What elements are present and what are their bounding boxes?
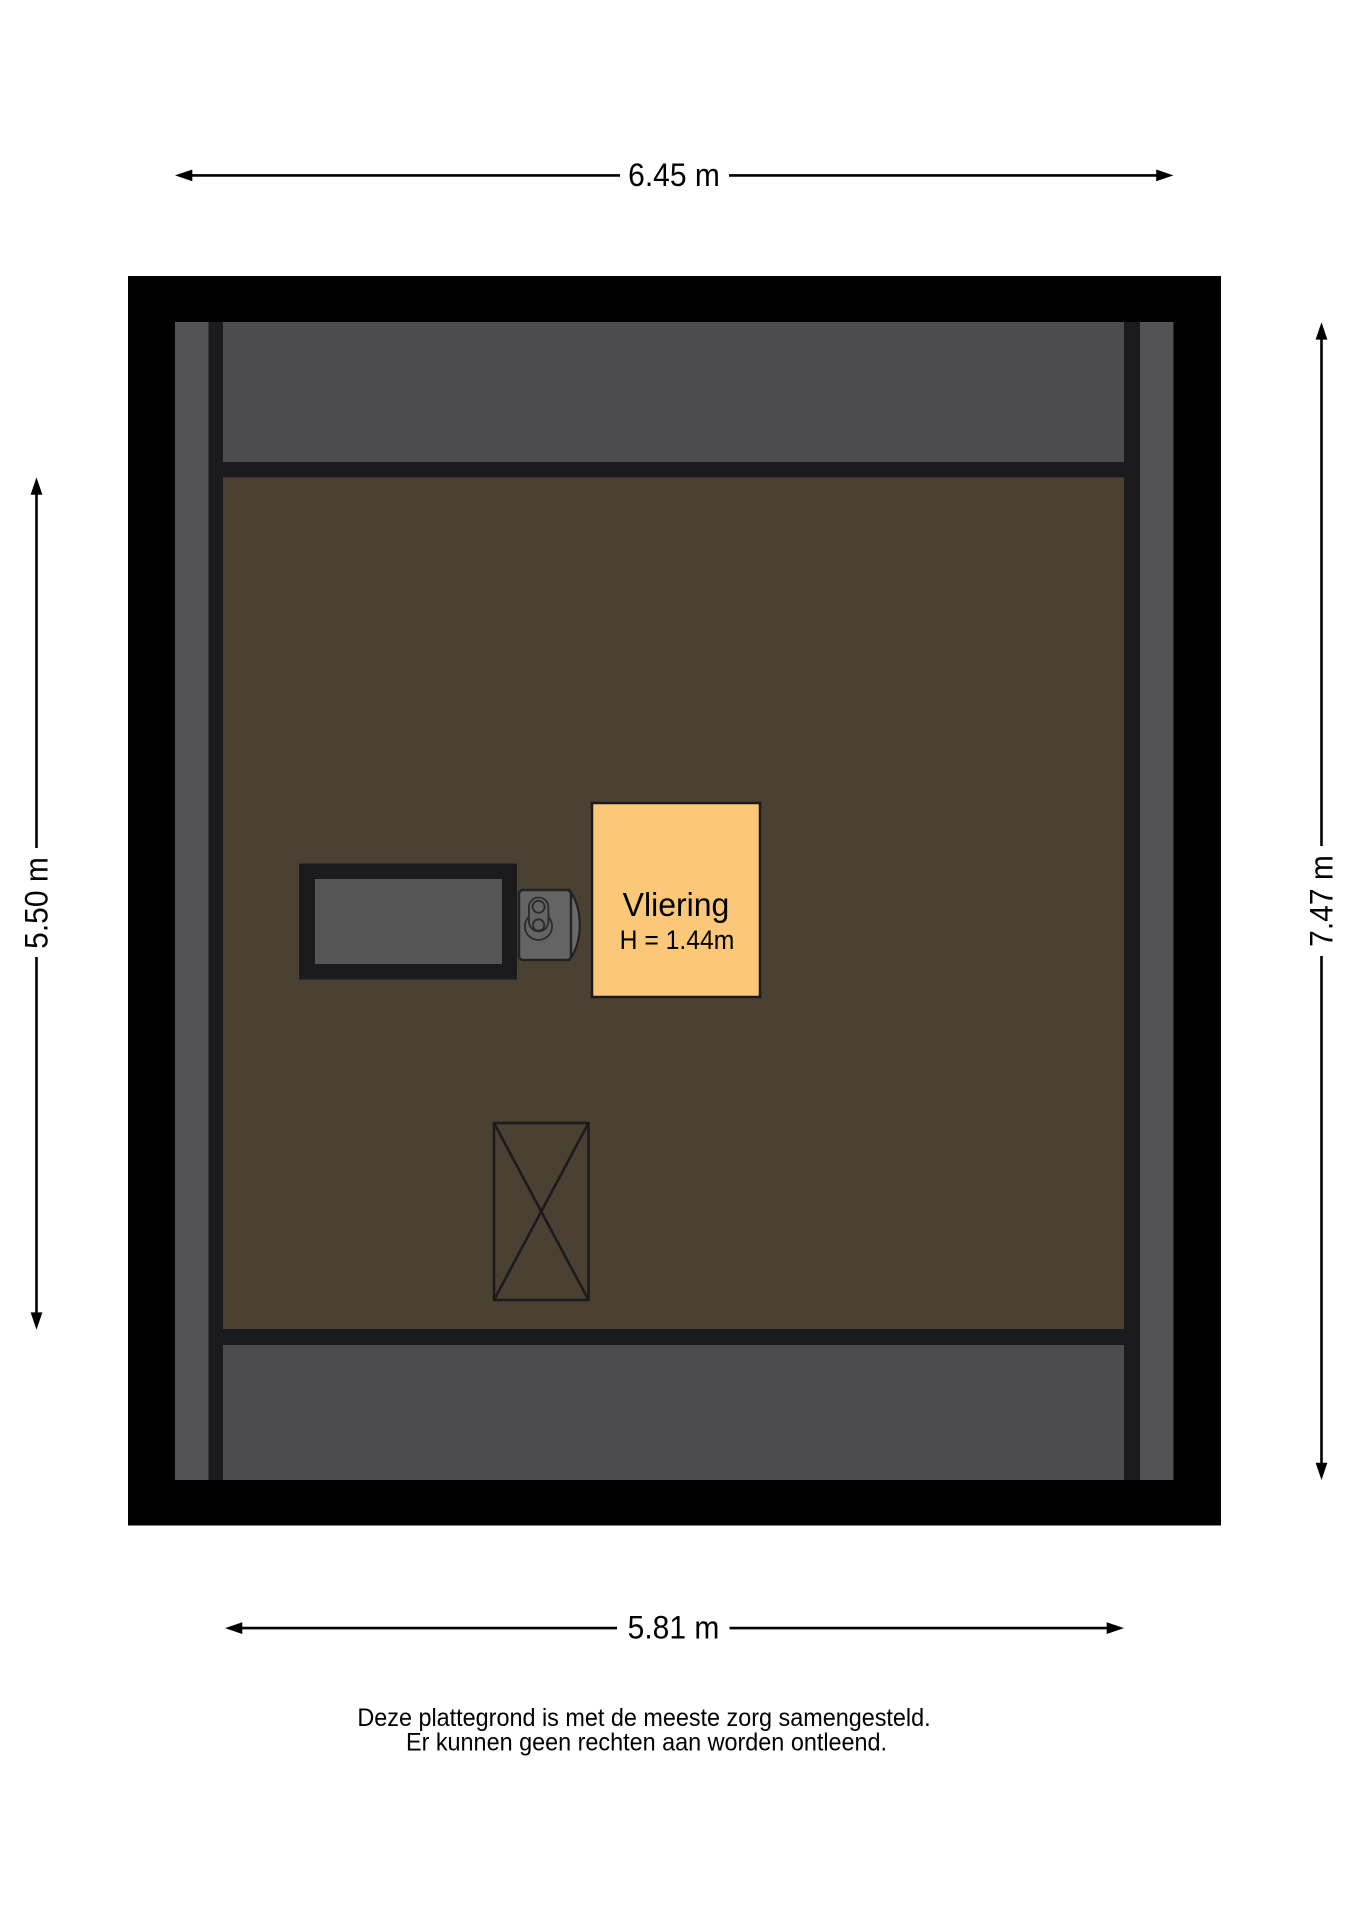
svg-text:Vliering: Vliering xyxy=(623,885,730,923)
svg-text:5.81 m: 5.81 m xyxy=(628,1609,720,1645)
svg-text:7.47 m: 7.47 m xyxy=(1303,855,1339,947)
svg-text:5.50 m: 5.50 m xyxy=(18,857,54,949)
svg-text:Er kunnen geen rechten aan wor: Er kunnen geen rechten aan worden ontlee… xyxy=(406,1729,887,1757)
svg-text:6.45 m: 6.45 m xyxy=(628,157,720,193)
svg-text:H = 1.44m: H = 1.44m xyxy=(620,926,735,955)
